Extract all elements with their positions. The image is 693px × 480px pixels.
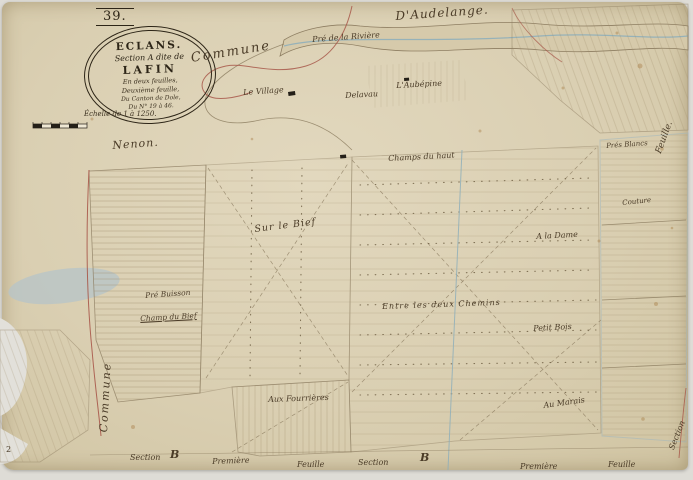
bottom-margin-label: Section: [130, 454, 160, 462]
map-title: ECLANS.: [116, 39, 183, 53]
bottom-margin-label: B: [170, 449, 179, 460]
bottom-margin-label: Première: [212, 457, 250, 466]
scanned-map-page: 39. ECLANS. Section A dite de LAFIN En d…: [0, 0, 693, 480]
corner-sheet-number: 2: [6, 446, 11, 454]
bottom-margin-label: Section: [358, 459, 388, 467]
bottom-margin-label: Première: [520, 463, 557, 471]
scale-bar: [33, 122, 87, 128]
bottom-margin-label: Feuille: [608, 461, 635, 469]
scale-text: Échelle de 1 à 1250.: [84, 110, 157, 118]
sheet-number: 39.: [96, 8, 134, 26]
bottom-margin-label: B: [420, 452, 429, 463]
bottom-margin-label: Feuille: [297, 461, 324, 469]
section-name: LAFIN: [122, 62, 177, 77]
commune-label-left-vertical: Commune: [98, 362, 113, 433]
neighbor-label-nenon: Nenon.: [112, 137, 159, 151]
